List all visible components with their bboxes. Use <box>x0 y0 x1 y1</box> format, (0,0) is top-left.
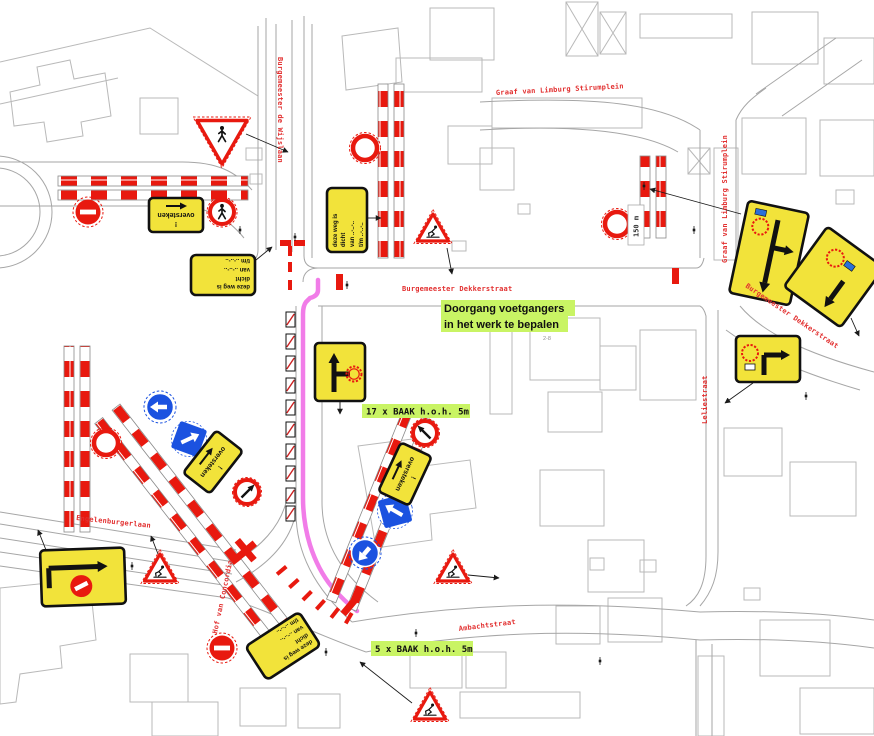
svg-text:dicht: dicht <box>341 233 347 247</box>
road-closed-ring-sign <box>350 133 381 164</box>
svg-text:t/m ..-..-..: t/m ..-..-.. <box>359 222 365 247</box>
crossing-text-sign: ! oversteken <box>149 198 203 232</box>
annotation-doorgang: Doorgang voetgangers in het werk te bepa… <box>441 300 575 332</box>
street-label-graaf-van-limburg-stirumplein-top: Graaf van Limburg Stirumplein <box>496 82 624 97</box>
annotation-baak-17: 17 x BAAK h.o.h. 5m <box>362 404 470 418</box>
svg-text:5 x BAAK h.o.h. 5m: 5 x BAAK h.o.h. 5m <box>375 645 473 655</box>
no-entry-sign <box>207 633 237 663</box>
barrier-fence-left <box>64 346 90 532</box>
svg-text:deze weg is: deze weg is <box>216 283 250 289</box>
svg-text:in het werk te bepalen: in het werk te bepalen <box>444 319 559 331</box>
svg-text:oversteken: oversteken <box>158 211 195 218</box>
svg-text:!: ! <box>175 220 177 227</box>
distance-150m-label: 150 m <box>628 205 644 245</box>
roadworks-warning-sign <box>434 550 472 584</box>
road-closed-text-sign: deze weg is dicht van ..-..-.. t/m ..-..… <box>327 188 367 252</box>
roadworks-warning-sign <box>411 688 449 722</box>
detour-route-sign <box>736 336 800 382</box>
roadworks-plan-map: 2-8 <box>0 0 874 736</box>
svg-text:Doorgang voetgangers: Doorgang voetgangers <box>444 303 564 315</box>
pedestrian-ring-sign <box>207 197 237 227</box>
roadworks-warning-sign <box>141 550 179 584</box>
baak-unit-row <box>286 246 295 521</box>
street-label-graaf-van-limburg-stirumplein-right: Graaf van Limburg Stirumplein <box>721 135 729 263</box>
no-entry-sign <box>73 197 103 227</box>
road-closed-text-sign: deze weg is dicht van ..-..-.. t/m ..-..… <box>191 255 255 295</box>
svg-text:dicht: dicht <box>236 275 250 281</box>
svg-text:van ..-..-..: van ..-..-.. <box>224 266 250 272</box>
svg-text:17 x BAAK h.o.h. 5m: 17 x BAAK h.o.h. 5m <box>366 408 470 418</box>
no-turn-arrow-sign <box>233 478 262 507</box>
detour-route-sign <box>40 548 126 607</box>
yield-pedestrian-sign <box>193 117 251 168</box>
svg-text:t/m ..-..-..: t/m ..-..-.. <box>225 257 250 263</box>
street-label-leliestraat: Leliestraat <box>701 375 709 424</box>
street-label-ambachtstraat: Ambachtstraat <box>458 618 516 633</box>
street-label-burgemeester-de-wijslaan: Burgemeester de Wijslaan <box>276 57 284 163</box>
mandatory-direction-circle-sign <box>144 391 176 423</box>
detour-route-sign <box>315 343 365 401</box>
road-closed-ring-sign <box>91 428 122 459</box>
svg-text:150 m: 150 m <box>633 216 641 237</box>
svg-text:deze weg is: deze weg is <box>333 213 339 247</box>
barrier-fence-topleft <box>58 176 248 200</box>
no-turn-arrow-sign <box>411 419 440 448</box>
street-label-burgemeester-dekkerstraat-center: Burgemeester Dekkerstraat <box>402 285 512 293</box>
house-number-label: 2-8 <box>543 336 551 342</box>
annotation-baak-5: 5 x BAAK h.o.h. 5m <box>371 641 473 656</box>
street-labels: Burgemeester de Wijslaan Graaf van Limbu… <box>76 57 840 634</box>
svg-text:van ..-..-..: van ..-..-.. <box>350 221 356 247</box>
roadworks-warning-sign <box>414 210 452 244</box>
barrier-fence-topcenter <box>378 84 404 258</box>
